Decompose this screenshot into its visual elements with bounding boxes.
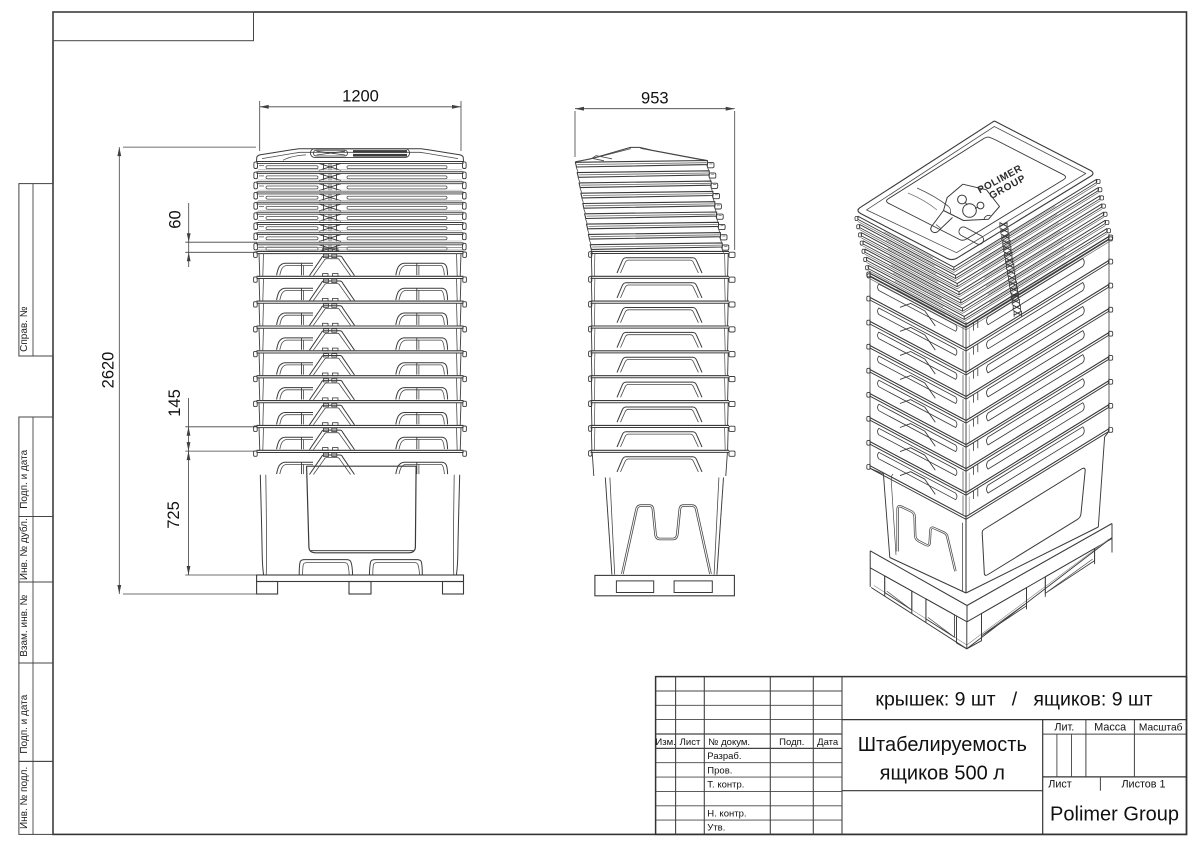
svg-text:Лист: Лист	[1048, 779, 1072, 791]
svg-text:Т. контр.: Т. контр.	[707, 780, 744, 791]
svg-text:Штабелируемость: Штабелируемость	[858, 734, 1027, 756]
svg-text:Взам. инв. №: Взам. инв. №	[19, 595, 30, 657]
svg-text:2620: 2620	[100, 352, 118, 389]
svg-text:Инв. № подл.: Инв. № подл.	[19, 767, 30, 829]
svg-text:№ докум.: № докум.	[708, 737, 750, 748]
svg-text:Масштаб: Масштаб	[1139, 722, 1183, 734]
svg-text:Н. контр.: Н. контр.	[707, 808, 746, 819]
svg-text:Подп.: Подп.	[779, 737, 804, 748]
svg-text:1200: 1200	[342, 88, 379, 106]
svg-text:Пров.: Пров.	[707, 765, 732, 776]
svg-text:Справ. №: Справ. №	[19, 306, 30, 352]
svg-text:ящиков 500 л: ящиков 500 л	[880, 763, 1005, 785]
svg-text:725: 725	[165, 501, 183, 529]
svg-text:Инв. № дубл.: Инв. № дубл.	[18, 518, 30, 580]
svg-text:Подп. и дата: Подп. и дата	[19, 449, 30, 508]
svg-text:Изм.: Изм.	[655, 737, 675, 748]
svg-text:Утв.: Утв.	[707, 823, 725, 834]
svg-text:крышек: 9 шт / ящиков: 9 ш: крышек: 9 шт / ящиков: 9 шт	[875, 689, 1152, 711]
svg-text:Листов 1: Листов 1	[1121, 779, 1165, 791]
svg-text:Масса: Масса	[1094, 722, 1126, 734]
svg-text:Разраб.: Разраб.	[707, 751, 741, 762]
svg-text:Лист: Лист	[680, 737, 701, 748]
svg-text:Polimer Group: Polimer Group	[1050, 804, 1179, 826]
svg-text:Дата: Дата	[817, 737, 839, 748]
svg-text:Лит.: Лит.	[1054, 722, 1074, 734]
svg-text:145: 145	[166, 389, 184, 417]
svg-text:60: 60	[167, 210, 185, 228]
svg-text:953: 953	[641, 90, 669, 108]
svg-text:Подп. и дата: Подп. и дата	[19, 694, 30, 753]
